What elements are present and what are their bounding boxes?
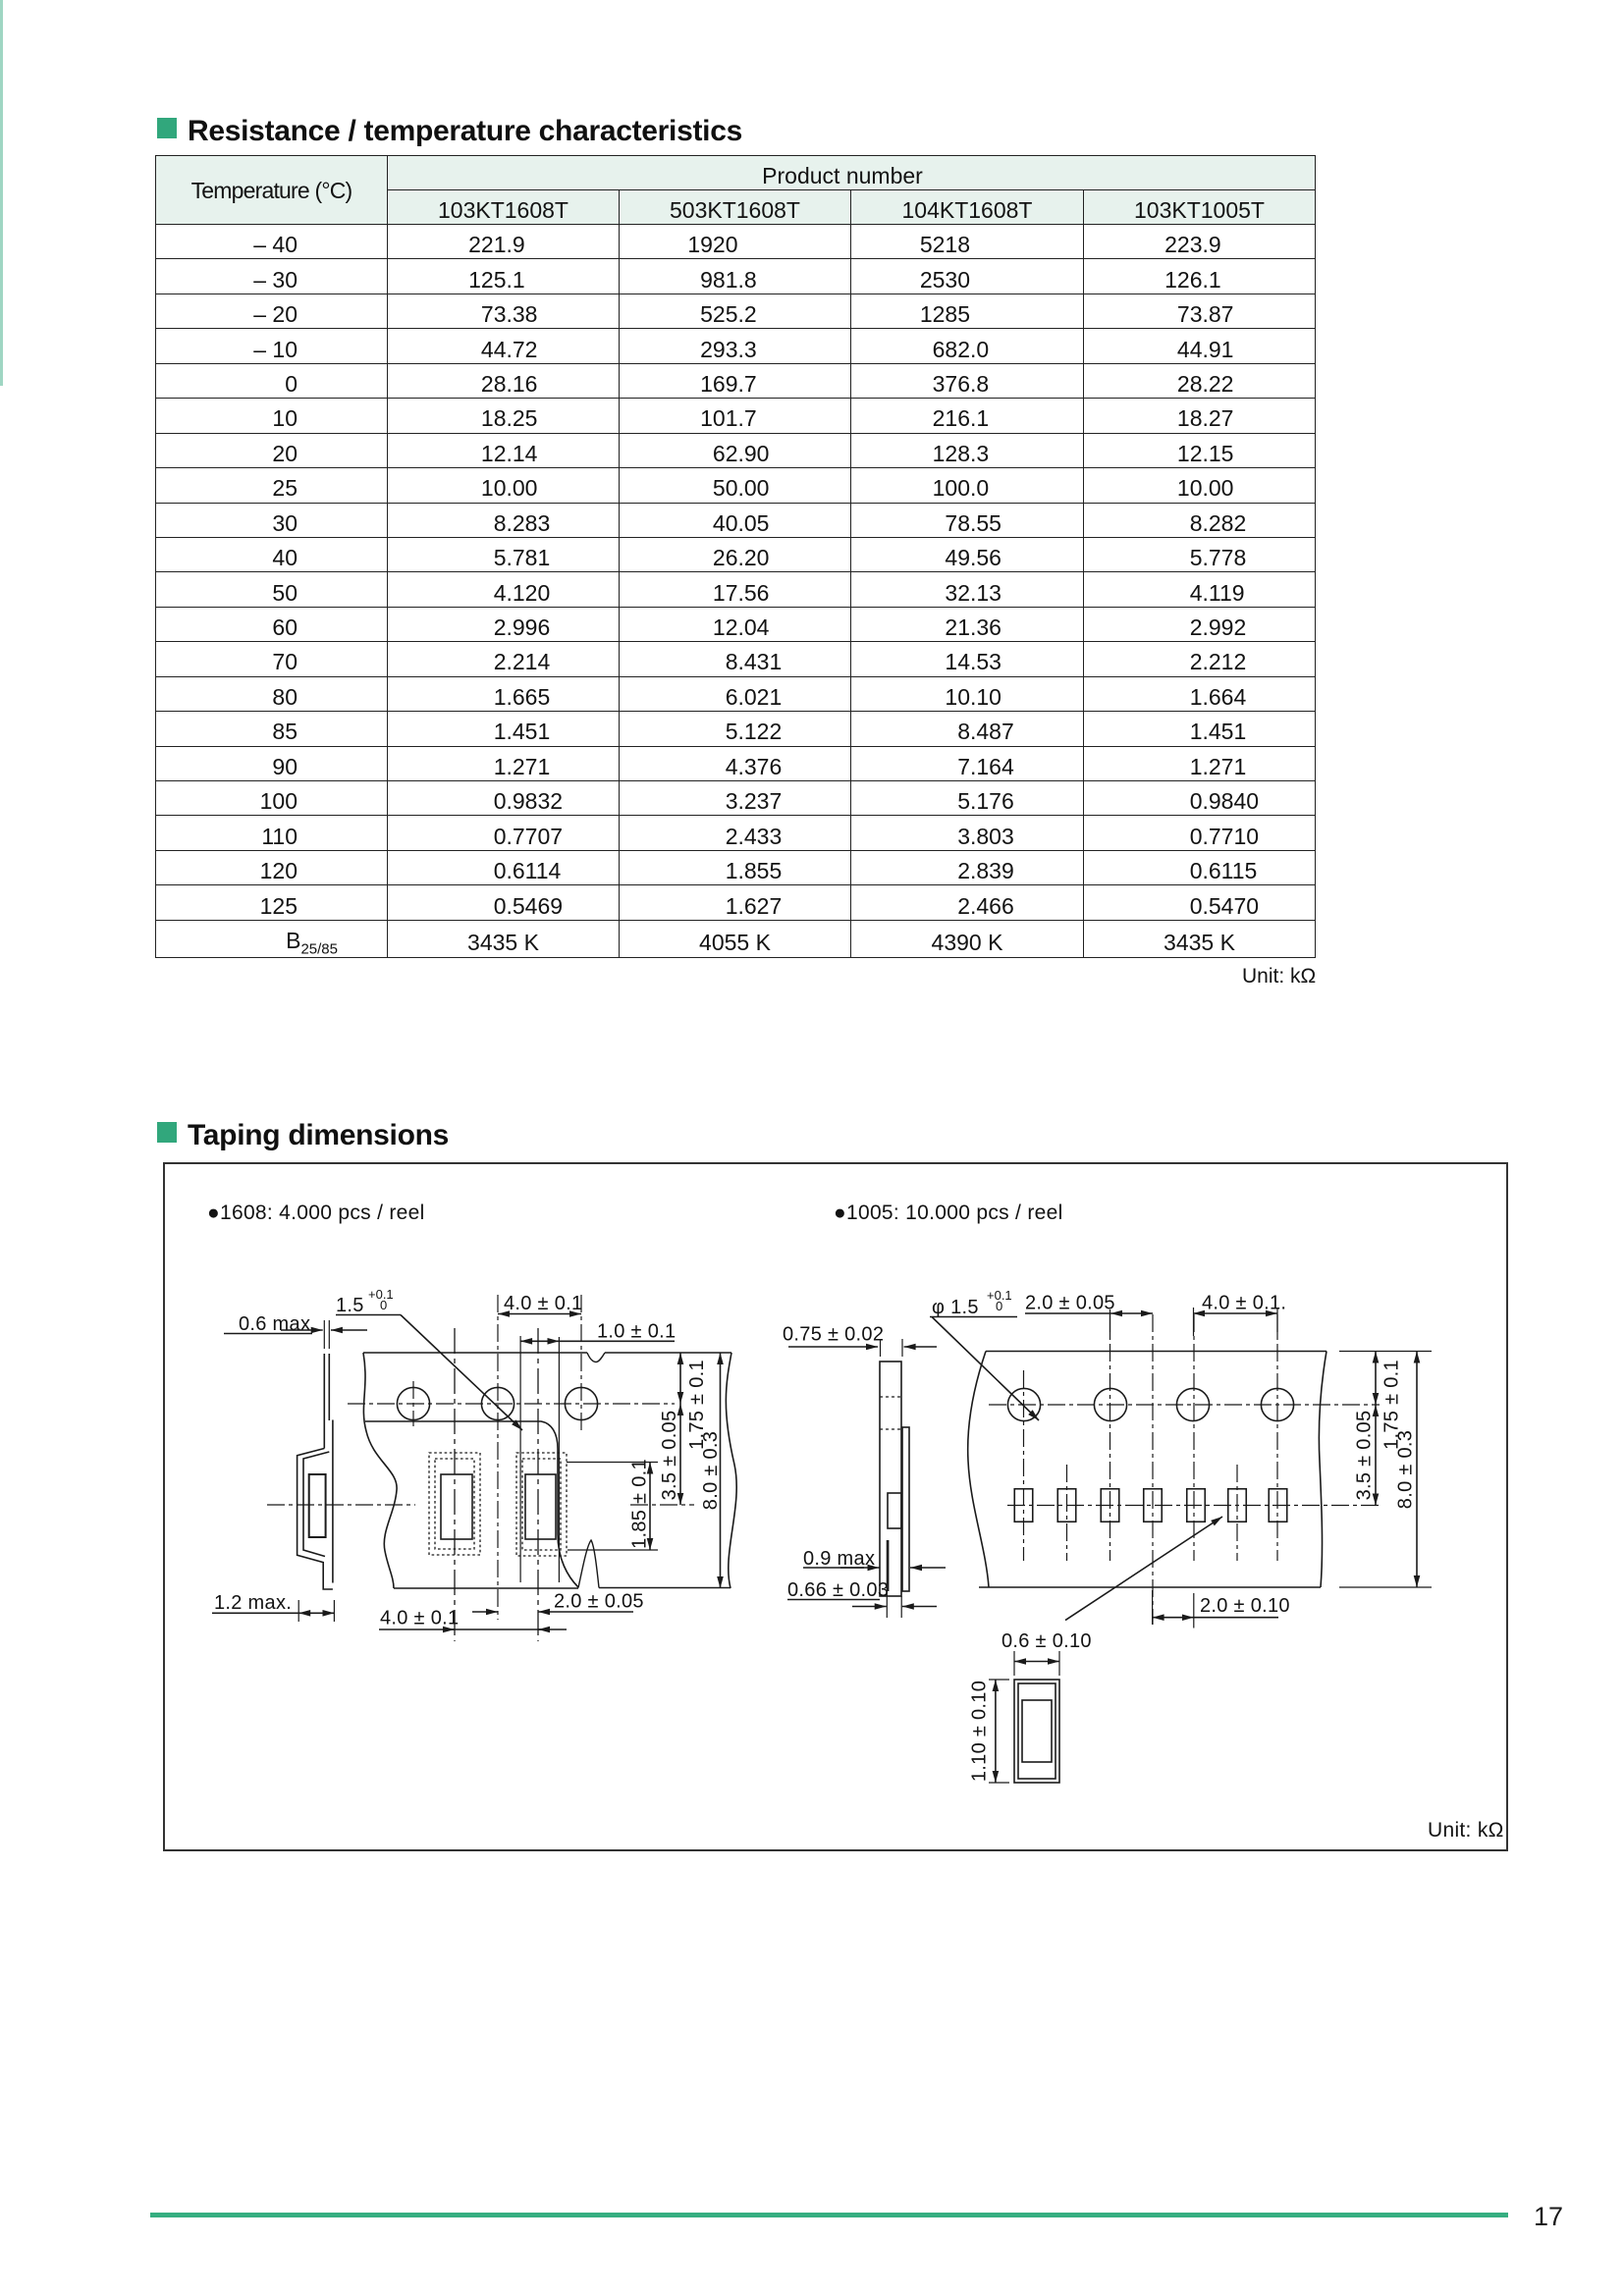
svg-text:φ 1.5: φ 1.5 bbox=[932, 1297, 979, 1318]
svg-text:1.0 ± 0.1: 1.0 ± 0.1 bbox=[597, 1321, 676, 1343]
svg-text:8.0 ± 0.3: 8.0 ± 0.3 bbox=[1395, 1430, 1417, 1509]
svg-text:1.5: 1.5 bbox=[336, 1295, 364, 1316]
svg-text:●1608: 4.000 pcs / reel: ●1608: 4.000 pcs / reel bbox=[207, 1201, 425, 1224]
svg-text:0.66 ± 0.03: 0.66 ± 0.03 bbox=[787, 1579, 889, 1601]
svg-text:2.0 ± 0.10: 2.0 ± 0.10 bbox=[1200, 1595, 1290, 1617]
svg-text:0: 0 bbox=[380, 1298, 387, 1312]
svg-text:2.0 ± 0.05: 2.0 ± 0.05 bbox=[1025, 1293, 1115, 1314]
svg-text:1.85 ± 0.1: 1.85 ± 0.1 bbox=[629, 1459, 651, 1549]
svg-text:8.0 ± 0.3: 8.0 ± 0.3 bbox=[700, 1431, 722, 1510]
svg-text:Unit: kΩ: Unit: kΩ bbox=[1428, 1819, 1504, 1842]
svg-text:3.5 ± 0.05: 3.5 ± 0.05 bbox=[1354, 1411, 1376, 1501]
svg-text:3.5 ± 0.05: 3.5 ± 0.05 bbox=[659, 1411, 680, 1501]
svg-text:0: 0 bbox=[996, 1299, 1002, 1313]
svg-text:0.75 ± 0.02: 0.75 ± 0.02 bbox=[783, 1324, 884, 1346]
svg-text:4.0 ± 0.1.: 4.0 ± 0.1. bbox=[1202, 1293, 1286, 1314]
svg-text:0.6 max.: 0.6 max. bbox=[239, 1313, 316, 1335]
svg-text:1.2 max.: 1.2 max. bbox=[214, 1592, 292, 1614]
svg-text:4.0 ± 0.1: 4.0 ± 0.1 bbox=[504, 1293, 582, 1314]
svg-text:0.9 max: 0.9 max bbox=[803, 1548, 875, 1570]
svg-text:2.0 ± 0.05: 2.0 ± 0.05 bbox=[554, 1590, 644, 1612]
svg-text:1.10 ± 0.10: 1.10 ± 0.10 bbox=[969, 1681, 991, 1782]
svg-text:4.0 ± 0.1: 4.0 ± 0.1 bbox=[380, 1608, 459, 1629]
svg-text:0.6 ± 0.10: 0.6 ± 0.10 bbox=[1001, 1630, 1092, 1652]
svg-text:●1005: 10.000 pcs / reel: ●1005: 10.000 pcs / reel bbox=[834, 1201, 1063, 1224]
